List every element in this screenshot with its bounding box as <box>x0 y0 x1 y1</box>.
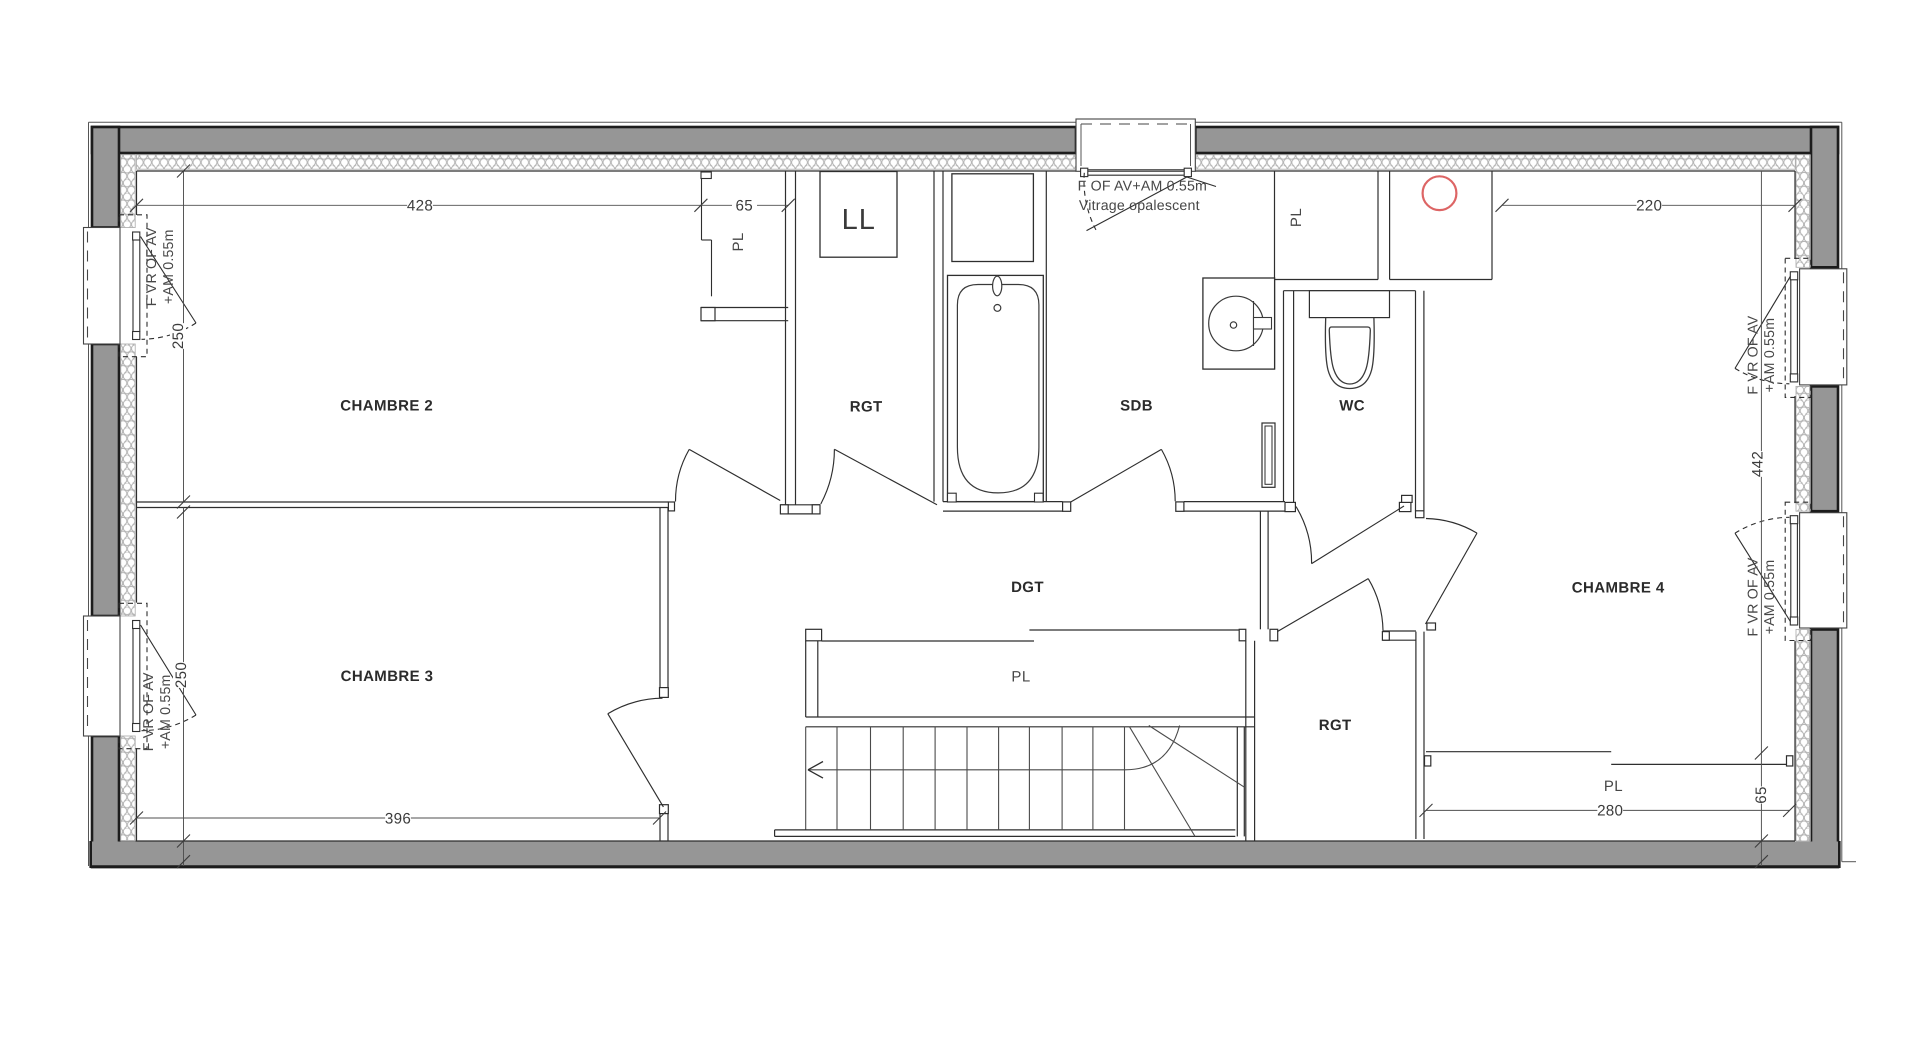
svg-text:428: 428 <box>407 198 433 215</box>
svg-text:+AM 0.55m: +AM 0.55m <box>158 674 174 749</box>
svg-text:250: 250 <box>170 323 187 349</box>
svg-text:CHAMBRE 4: CHAMBRE 4 <box>1572 580 1665 597</box>
svg-text:F VR OF AV: F VR OF AV <box>141 672 157 751</box>
svg-text:PL: PL <box>730 232 747 251</box>
svg-text:CHAMBRE 3: CHAMBRE 3 <box>341 668 434 685</box>
svg-text:PL: PL <box>1011 669 1030 686</box>
svg-text:RGT: RGT <box>1319 717 1352 734</box>
svg-text:+AM 0.55m: +AM 0.55m <box>1762 318 1778 393</box>
svg-text:65: 65 <box>736 198 754 215</box>
svg-text:280: 280 <box>1597 803 1623 820</box>
svg-text:+AM 0.55m: +AM 0.55m <box>161 229 177 304</box>
svg-text:220: 220 <box>1636 198 1662 215</box>
svg-text:LL: LL <box>842 204 876 236</box>
svg-text:250: 250 <box>173 662 190 688</box>
svg-text:CHAMBRE 2: CHAMBRE 2 <box>340 397 433 414</box>
svg-text:F VR OF AV: F VR OF AV <box>1746 557 1762 636</box>
svg-text:WC: WC <box>1339 398 1365 415</box>
svg-text:SDB: SDB <box>1120 398 1153 415</box>
svg-text:65: 65 <box>1753 786 1770 804</box>
svg-text:396: 396 <box>385 810 411 827</box>
svg-text:+AM 0.55m: +AM 0.55m <box>1762 560 1778 635</box>
svg-text:PL: PL <box>1604 778 1623 795</box>
svg-text:RGT: RGT <box>850 399 883 416</box>
svg-text:Vitrage opalescent: Vitrage opalescent <box>1079 198 1200 214</box>
svg-text:F VR OF AV: F VR OF AV <box>1745 315 1761 394</box>
svg-text:DGT: DGT <box>1011 579 1044 596</box>
svg-text:F VR OF AV: F VR OF AV <box>144 227 160 306</box>
svg-text:442: 442 <box>1750 451 1767 477</box>
svg-text:PL: PL <box>1288 208 1305 227</box>
svg-text:F OF AV+AM 0.55m: F OF AV+AM 0.55m <box>1078 178 1207 194</box>
